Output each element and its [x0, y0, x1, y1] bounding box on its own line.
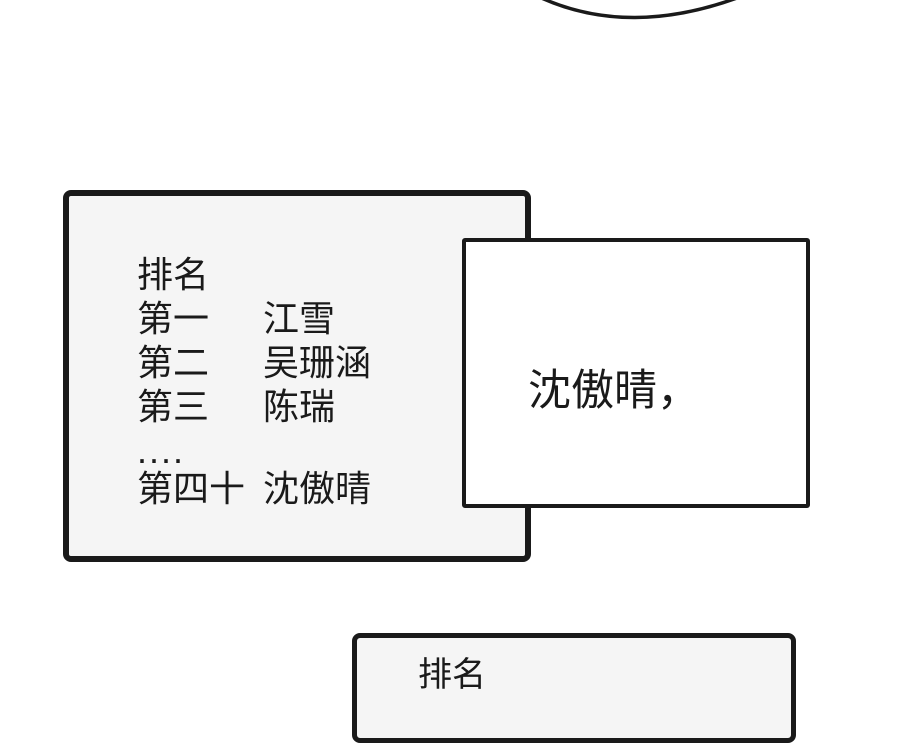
- comic-page: 排名 第一 江雪 第二 吴珊涵 第三 陈瑞 .... 第四十 沈傲晴: [0, 0, 900, 702]
- rank-label: 第四十: [137, 467, 263, 511]
- ranking-panel: 排名 第一 江雪 第二 吴珊涵 第三 陈瑞 .... 第四十 沈傲晴: [63, 190, 531, 562]
- ranking-row-1: 第一 江雪: [137, 297, 371, 341]
- bottom-ranking-title: 排名: [418, 655, 486, 695]
- rank-label: 第二: [137, 341, 263, 385]
- rank-name: 吴珊涵: [263, 341, 371, 385]
- rank-name: 江雪: [263, 297, 335, 341]
- rank-name: 陈瑞: [263, 385, 335, 429]
- ranking-row-3: 第三 陈瑞: [137, 385, 371, 429]
- ellipsis-text: ....: [137, 438, 185, 464]
- rank-name: 沈傲晴: [263, 467, 371, 511]
- ranking-row-40: 第四十 沈傲晴: [137, 467, 371, 511]
- speech-bubble-arc: [0, 0, 900, 44]
- callout-box: 沈傲晴，: [462, 238, 810, 508]
- rank-label: 第三: [137, 385, 263, 429]
- ranking-ellipsis-row: ....: [137, 438, 371, 464]
- bottom-ranking-panel: 排名: [352, 633, 796, 743]
- ranking-row-2: 第二 吴珊涵: [137, 341, 371, 385]
- rank-label: 第一: [137, 297, 263, 341]
- ranking-title: 排名: [137, 253, 263, 297]
- ranking-list: 排名 第一 江雪 第二 吴珊涵 第三 陈瑞 .... 第四十 沈傲晴: [137, 253, 371, 511]
- ranking-title-row: 排名: [137, 253, 371, 297]
- callout-text: 沈傲晴，: [528, 370, 700, 413]
